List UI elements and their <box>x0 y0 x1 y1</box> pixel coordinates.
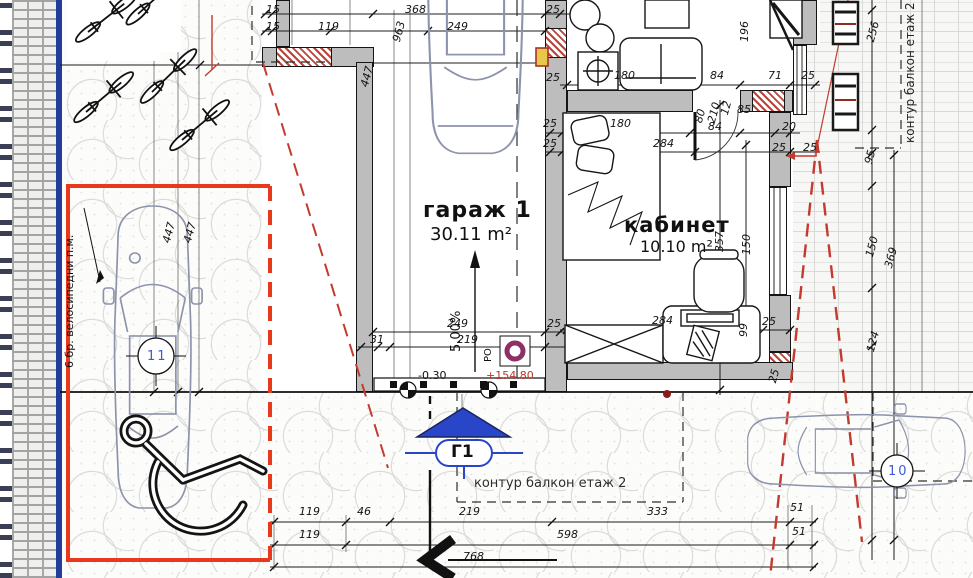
floor-plan-canvas: гараж 1 30.11 m² 5.00% кабинет 10.10 m² … <box>0 0 973 578</box>
dimension-label: 249 <box>447 20 468 33</box>
dimension-label: 368 <box>405 3 426 16</box>
dimension-label: 119 <box>299 528 320 541</box>
dimension-label: 46 <box>357 505 371 518</box>
dimension-label: 196 <box>738 21 751 42</box>
dimension-label: 31 <box>370 333 384 346</box>
dimension-label: 768 <box>463 550 484 563</box>
dimension-label: 25 <box>543 137 557 150</box>
dimension-label: 284 <box>653 137 674 150</box>
dimension-label: 249 <box>447 317 468 330</box>
dimension-label: 150 <box>740 234 753 255</box>
dimension-label: 333 <box>647 505 668 518</box>
dimension-label: 99 <box>737 323 750 337</box>
car-garage <box>414 0 536 153</box>
dimension-label: 85 <box>737 103 751 116</box>
dimension-label: 25 <box>546 3 560 16</box>
dimension-label: 119 <box>318 20 339 33</box>
dimension-label: 219 <box>457 333 478 346</box>
dimension-label: 25 <box>762 315 776 328</box>
dimension-label: 84 <box>710 69 724 82</box>
level-absolute-label: +154.80 <box>486 369 534 382</box>
kabinet-area-label: 10.10 m² <box>640 237 713 256</box>
dimension-label: 15 <box>266 3 280 16</box>
level-relative-label: -0.30 <box>418 369 446 382</box>
garage-room-label: гараж 1 <box>423 198 532 223</box>
entrance-id-label: Г1 <box>451 442 474 462</box>
balcony-contour-right-label: контур балкон етаж 2 <box>903 2 917 143</box>
dimension-label: 20 <box>782 120 796 133</box>
bike-parking-label: 6 бр. велосипедни п.м. <box>63 235 76 368</box>
dimension-label: 15 <box>266 20 280 33</box>
dimension-label: 25 <box>543 117 557 130</box>
dimension-label: 25 <box>546 71 560 84</box>
floor-drain <box>500 336 530 366</box>
panel-box <box>536 48 548 66</box>
dimension-label: 84 <box>708 120 722 133</box>
right-section-elements <box>833 2 858 130</box>
dimension-label: 219 <box>459 505 480 518</box>
drain-label: РО <box>483 348 494 362</box>
dimension-label: 25 <box>547 317 561 330</box>
dimension-label: 71 <box>768 69 782 82</box>
dimension-label: 598 <box>557 528 578 541</box>
dimension-label: 180 <box>610 117 631 130</box>
wheelchair-icon <box>124 419 263 531</box>
balcony-contour-bottom-label: контур балкон етаж 2 <box>474 476 626 491</box>
parking-space-10-label: 10 <box>888 464 909 479</box>
bicycle-icons <box>66 0 236 284</box>
dimension-label: 25 <box>801 69 815 82</box>
dimension-label: 51 <box>792 525 806 538</box>
dimension-label: 25 <box>772 141 786 154</box>
plan-graphics <box>0 0 973 578</box>
dimension-label: 284 <box>652 314 673 327</box>
garage-area-label: 30.11 m² <box>430 224 512 245</box>
window-glazing <box>774 45 802 295</box>
dimension-label: 119 <box>299 505 320 518</box>
dimension-label: 180 <box>614 69 635 82</box>
slope-arrow <box>470 250 480 372</box>
dimension-label: 51 <box>790 501 804 514</box>
dimension-label: 25 <box>803 141 817 154</box>
parking-space-11-label: 11 <box>147 349 168 364</box>
dimension-label: 357 <box>713 231 726 252</box>
